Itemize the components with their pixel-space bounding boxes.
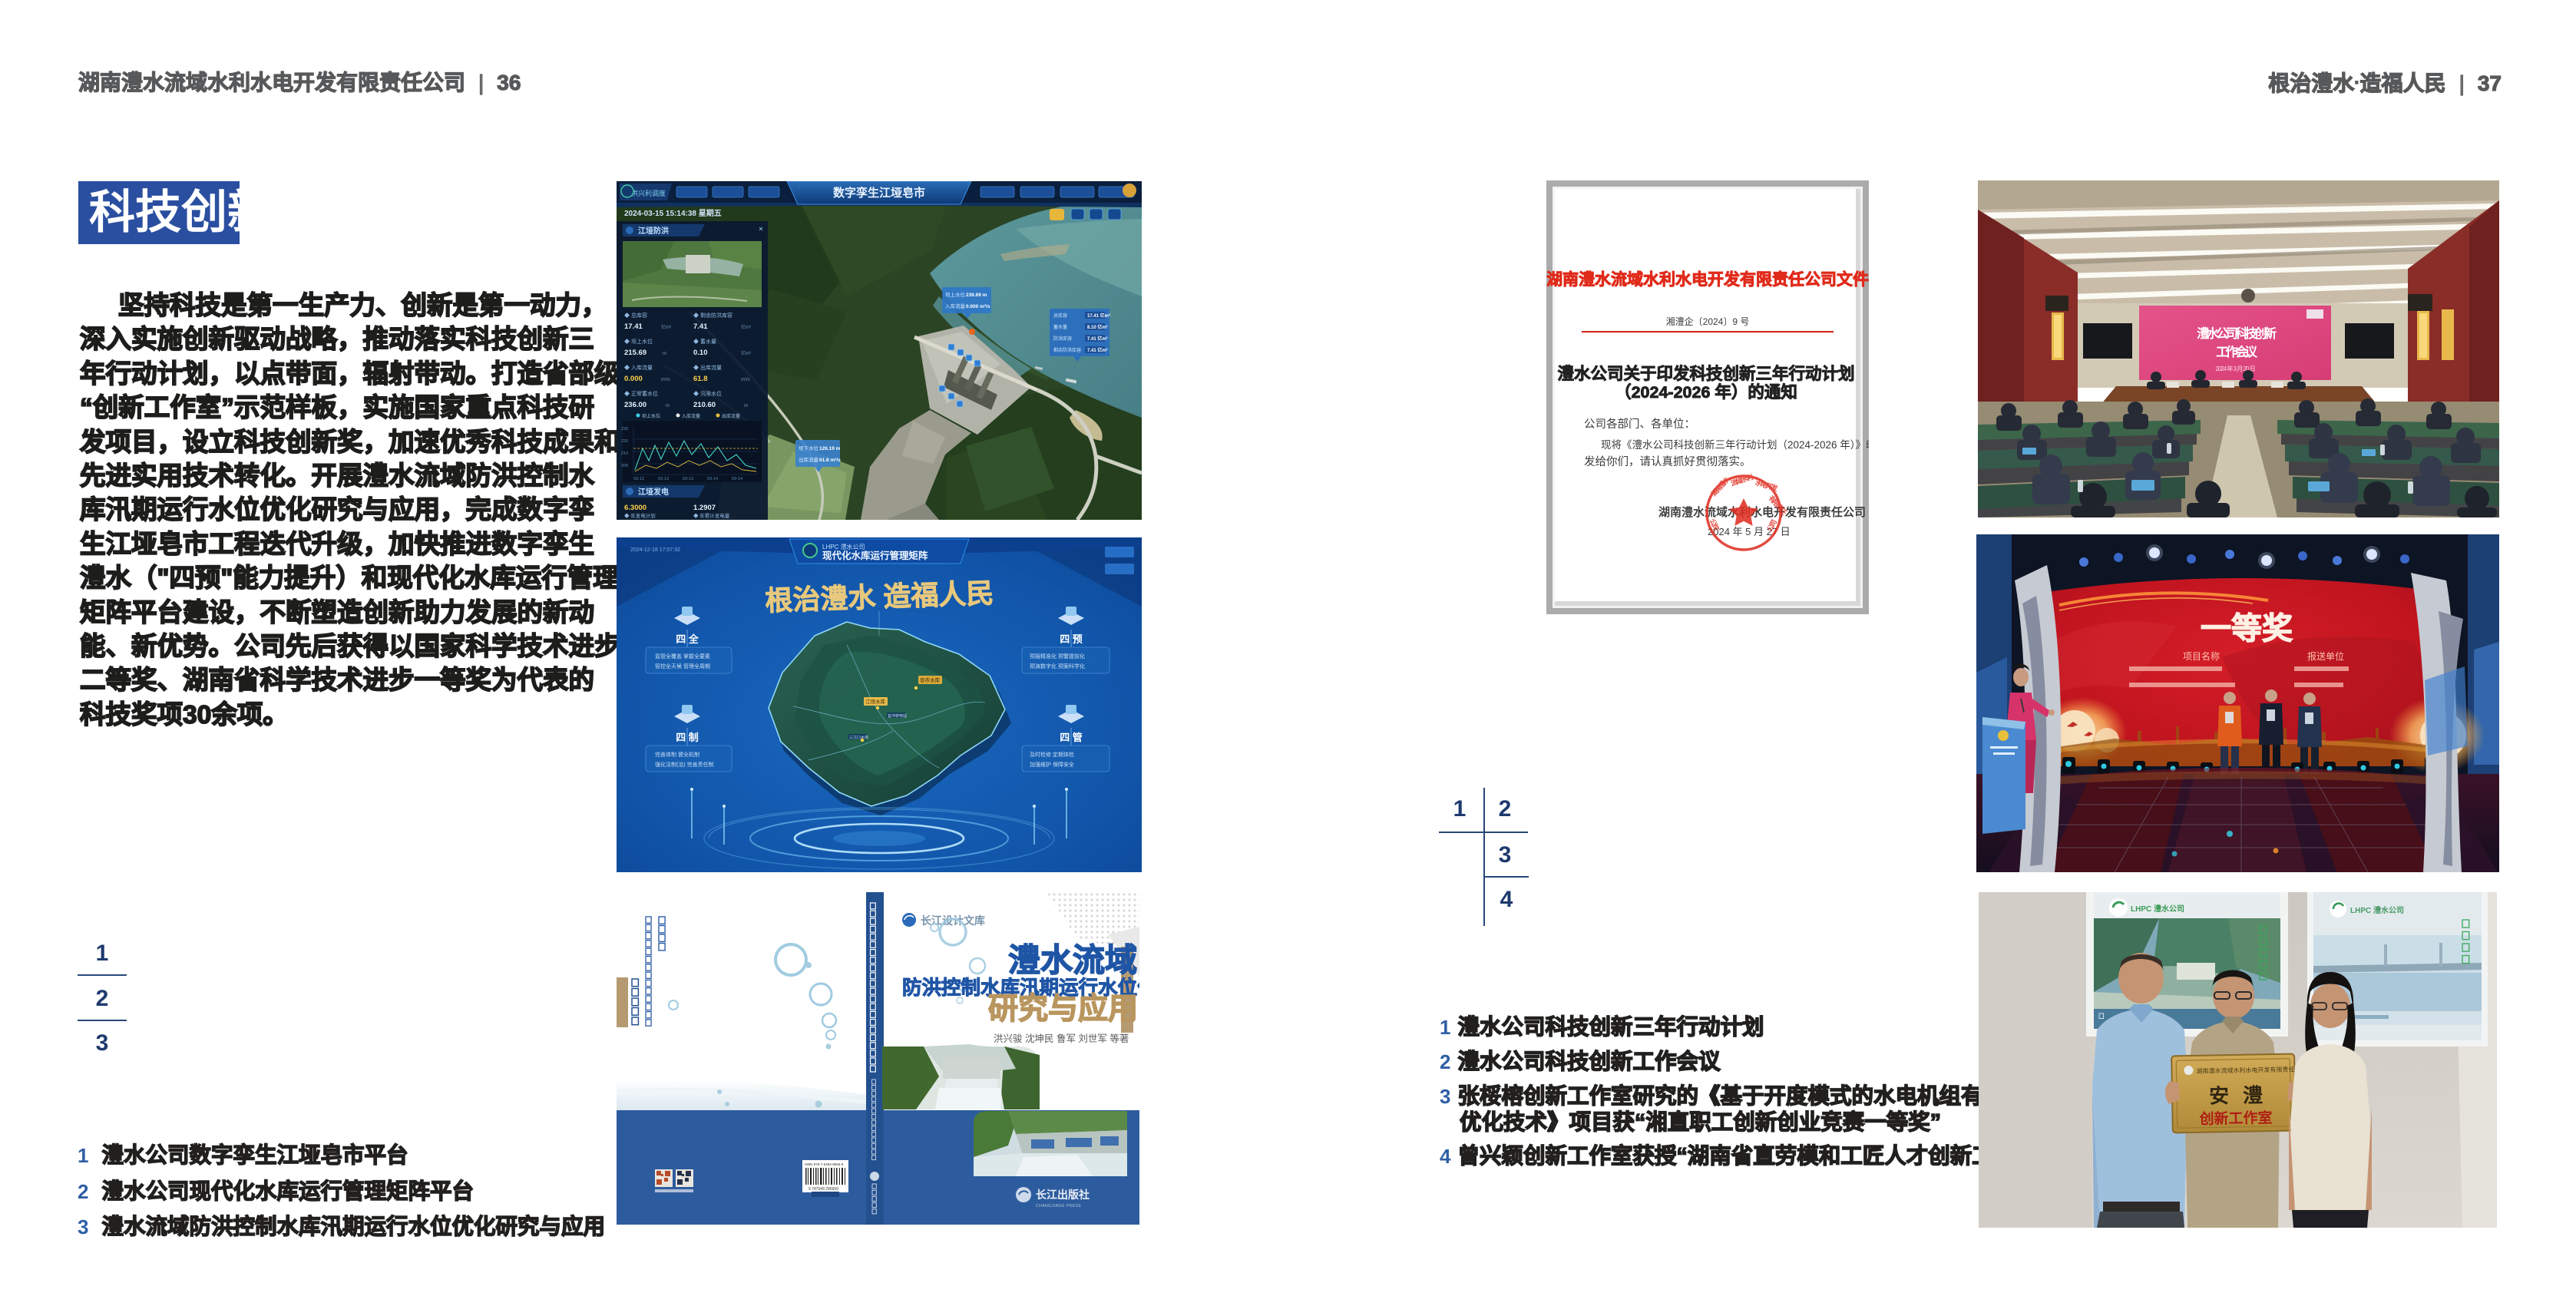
svg-text:坝下水位: 坝下水位	[799, 445, 819, 451]
svg-text:出库流量: 出库流量	[799, 456, 819, 463]
svg-text:◆ 蓄水量: ◆ 蓄水量	[693, 338, 716, 345]
svg-text:三江口水库: 三江口水库	[849, 735, 868, 740]
svg-text:CHANGJIANG PRESS: CHANGJIANG PRESS	[1036, 1204, 1081, 1208]
svg-text:长江出版社: 长江出版社	[1036, 1189, 1090, 1201]
svg-text:长江设计文库: 长江设计文库	[921, 914, 985, 927]
svg-text:210: 210	[621, 451, 628, 456]
svg-text:0.000 m³/s: 0.000 m³/s	[966, 304, 990, 309]
svg-text:7.41 亿m³: 7.41 亿m³	[1087, 347, 1108, 353]
svg-text:完善体制 健全机制: 完善体制 健全机制	[655, 751, 699, 758]
svg-text:江垭防洪: 江垭防洪	[638, 226, 669, 236]
svg-text:（2024-2026 年）的通知: （2024-2026 年）的通知	[1615, 382, 1797, 402]
svg-text:湖南澧水流域水利水电开发有限责任公司: 湖南澧水流域水利水电开发有限责任公司	[1658, 506, 1866, 519]
svg-text:四 全: 四 全	[676, 633, 699, 645]
svg-text:230: 230	[621, 427, 628, 431]
svg-text:8.10 亿m³: 8.10 亿m³	[1087, 324, 1108, 330]
svg-text:◆ 正常蓄水位: ◆ 正常蓄水位	[624, 390, 658, 397]
svg-text:入库流量: 入库流量	[682, 413, 700, 419]
svg-text:0.10: 0.10	[693, 349, 708, 357]
svg-text:m³/s: m³/s	[741, 378, 750, 382]
svg-text:m³/s: m³/s	[661, 378, 670, 382]
svg-text:m: m	[666, 404, 670, 408]
svg-text:江垭水库: 江垭水库	[865, 698, 886, 705]
svg-text:m: m	[663, 352, 666, 356]
svg-text:公司各部门、各单位：: 公司各部门、各单位：	[1584, 418, 1695, 431]
svg-text:03-13: 03-13	[683, 477, 693, 481]
svg-text:◆ 剩余防洪库容: ◆ 剩余防洪库容	[693, 312, 732, 319]
svg-text:澧水公司关于印发科技创新三年行动计划: 澧水公司关于印发科技创新三年行动计划	[1557, 364, 1854, 383]
svg-text:0.000: 0.000	[624, 375, 643, 383]
svg-text:安澧: 安澧	[2209, 1083, 2277, 1108]
svg-text:加强维护 保障安全: 加强维护 保障安全	[1030, 761, 1074, 768]
svg-text:2024-03-15 15:14:38 星期五: 2024-03-15 15:14:38 星期五	[624, 208, 722, 218]
svg-text:◆ 入库流量: ◆ 入库流量	[624, 364, 653, 371]
svg-text:蓄水量: 蓄水量	[1053, 324, 1067, 330]
svg-text:LHPC 澧水公司: LHPC 澧水公司	[2131, 904, 2184, 914]
svg-text:预报精准化 预警提前化: 预报精准化 预警提前化	[1030, 653, 1085, 660]
svg-text:坝上水位: 坝上水位	[642, 413, 660, 419]
svg-text:项目名称: 项目名称	[2183, 650, 2220, 662]
svg-text:出库流量: 出库流量	[722, 413, 740, 419]
svg-text:总库容: 总库容	[1053, 312, 1067, 319]
svg-text:236.69 m: 236.69 m	[966, 293, 987, 298]
svg-text:管控全天候 管理全周期: 管控全天候 管理全周期	[655, 663, 710, 670]
svg-text:03-14: 03-14	[707, 477, 718, 481]
svg-text:17.41 亿m³: 17.41 亿m³	[1087, 312, 1110, 319]
svg-text:现将《澧水公司科技创新三年行动计划（2024-2026 年）: 现将《澧水公司科技创新三年行动计划（2024-2026 年）》印	[1601, 439, 1869, 451]
svg-text:监管全覆盖 掌握全要素: 监管全覆盖 掌握全要素	[655, 653, 710, 660]
svg-text:6.3000: 6.3000	[624, 504, 646, 512]
svg-text:ISBN 978-7-5492-9565-9: ISBN 978-7-5492-9565-9	[805, 1162, 844, 1166]
svg-text:研究与应用: 研究与应用	[988, 993, 1138, 1026]
svg-text:◆ 汛限水位: ◆ 汛限水位	[693, 390, 722, 397]
svg-text:9 787549 295659: 9 787549 295659	[809, 1187, 838, 1192]
svg-text:澧水流域: 澧水流域	[1008, 942, 1137, 978]
svg-text:LHPC 澧水公司: LHPC 澧水公司	[2350, 905, 2404, 915]
svg-text:亿m³: 亿m³	[741, 324, 751, 330]
svg-text:洪兴骏 沈坤民 鲁军 刘世军 等著: 洪兴骏 沈坤民 鲁军 刘世军 等著	[994, 1033, 1129, 1044]
svg-text:7.41 亿m³: 7.41 亿m³	[1087, 336, 1108, 342]
svg-text:澧水公司科技创新: 澧水公司科技创新	[2197, 326, 2277, 341]
svg-text:创新工作室: 创新工作室	[2198, 1109, 2272, 1128]
svg-text:215.69: 215.69	[624, 349, 646, 357]
svg-text:江垭发电: 江垭发电	[638, 487, 669, 497]
svg-text:m: m	[744, 404, 748, 408]
svg-text:现代化水库运行管理矩阵: 现代化水库运行管理矩阵	[822, 550, 928, 561]
svg-text:亿m³: 亿m³	[741, 350, 751, 356]
svg-text:湖南澧水流域水利水电开发有限责任公司文件: 湖南澧水流域水利水电开发有限责任公司文件	[1546, 270, 1869, 289]
svg-text:1.2907: 1.2907	[693, 504, 716, 512]
svg-text:数字孪生江垭皂市: 数字孪生江垭皂市	[833, 186, 925, 200]
svg-text:防洪库容: 防洪库容	[1053, 336, 1072, 342]
svg-text:◆ 年发电计划: ◆ 年发电计划	[624, 512, 656, 519]
svg-text:61.8: 61.8	[693, 375, 708, 383]
svg-text:2024-12-18 17:07:32: 2024-12-18 17:07:32	[630, 547, 680, 553]
svg-text:皂市水库: 皂市水库	[920, 676, 941, 683]
svg-text:入库流量: 入库流量	[945, 303, 966, 309]
svg-text:◆ 总库容: ◆ 总库容	[624, 312, 647, 319]
svg-text:200: 200	[621, 464, 628, 468]
svg-text:03-13: 03-13	[658, 477, 669, 481]
svg-text:亿m³: 亿m³	[661, 324, 671, 330]
svg-text:湘澧企〔2024〕9 号: 湘澧企〔2024〕9 号	[1666, 316, 1750, 327]
svg-text:坝上水位: 坝上水位	[945, 291, 966, 298]
svg-text:预演数字化 预案科学化: 预演数字化 预案科学化	[1030, 663, 1085, 670]
svg-text:236.00: 236.00	[624, 401, 646, 409]
svg-text:03-14: 03-14	[732, 477, 742, 481]
svg-text:61.8 m³/s: 61.8 m³/s	[819, 458, 841, 463]
svg-text:220: 220	[621, 439, 628, 444]
svg-text:7.41: 7.41	[693, 322, 708, 331]
svg-text:报送单位: 报送单位	[2307, 650, 2344, 662]
svg-text:剩余防洪库容: 剩余防洪库容	[1053, 347, 1081, 353]
svg-text:◆ 坝上水位: ◆ 坝上水位	[624, 338, 653, 345]
svg-text:126.19 m: 126.19 m	[819, 446, 841, 451]
svg-text:LHPC 澧水公司: LHPC 澧水公司	[822, 543, 865, 551]
svg-text:及时检修 定期体检: 及时检修 定期体检	[1030, 751, 1074, 758]
svg-text:工作会议: 工作会议	[2216, 344, 2258, 359]
svg-text:210.60: 210.60	[693, 401, 716, 409]
svg-text:◆ 年累计发电量: ◆ 年累计发电量	[693, 512, 730, 519]
svg-text:◆ 出库流量: ◆ 出库流量	[693, 364, 722, 371]
svg-text:强化法制(治) 完善责任制: 强化法制(治) 完善责任制	[655, 761, 714, 768]
svg-text:03-12: 03-12	[633, 477, 644, 481]
svg-text:宜冲桥电站: 宜冲桥电站	[888, 713, 907, 719]
svg-text:17.41: 17.41	[624, 322, 643, 331]
svg-text:发给你们，请认真抓好贯彻落实。: 发给你们，请认真抓好贯彻落实。	[1584, 455, 1751, 468]
svg-text:一等奖: 一等奖	[2201, 612, 2293, 646]
